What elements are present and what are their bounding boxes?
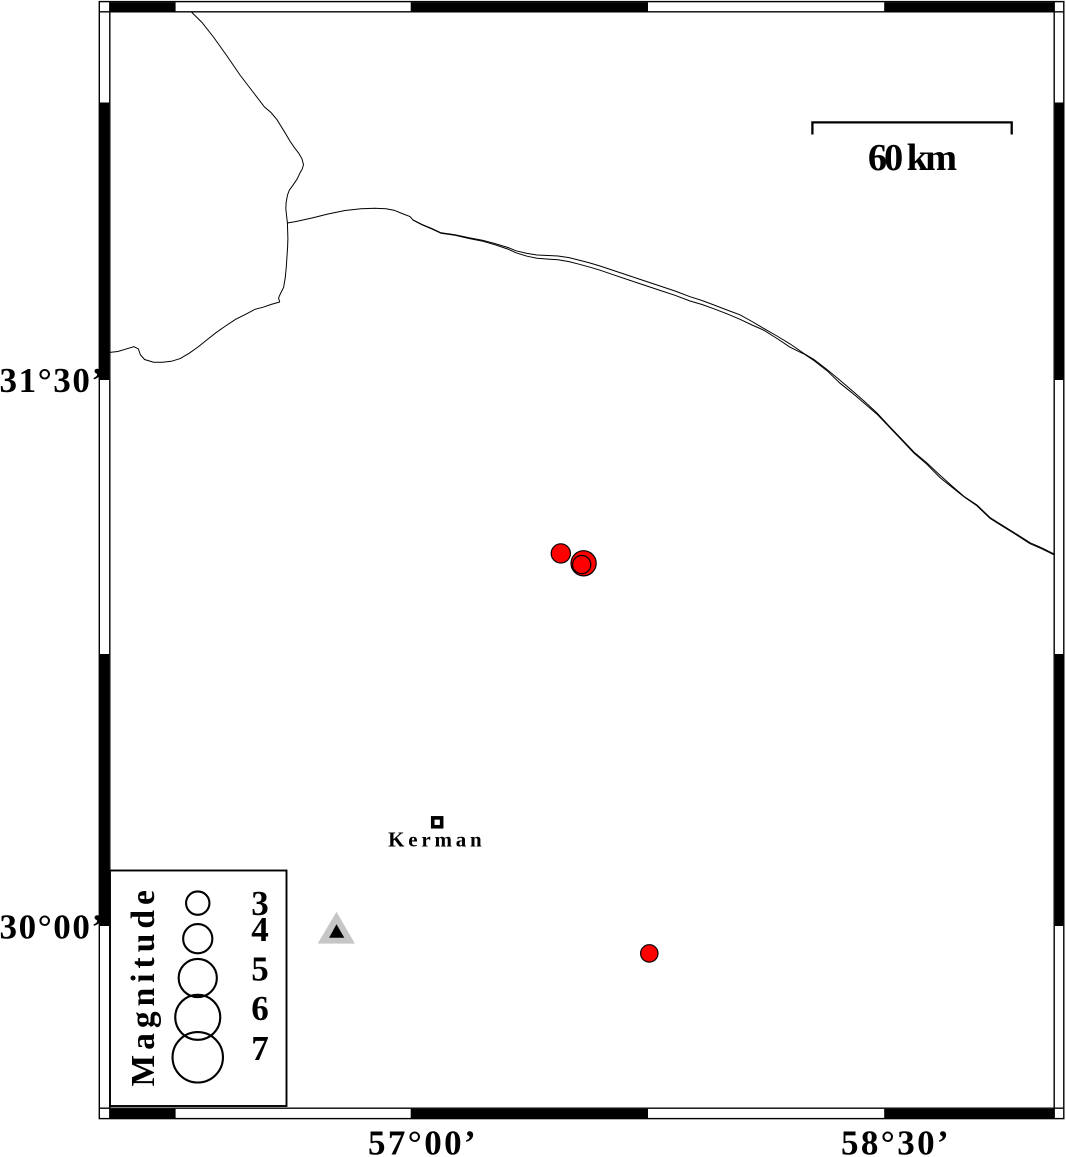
svg-text:6: 6 <box>251 989 269 1028</box>
svg-text:30°00’: 30°00’ <box>0 908 105 947</box>
svg-text:58°30’: 58°30’ <box>841 1124 951 1157</box>
svg-text:4: 4 <box>251 910 269 949</box>
svg-text:Kerman: Kerman <box>388 828 485 852</box>
svg-text:7: 7 <box>251 1029 269 1068</box>
svg-text:60 km: 60 km <box>868 137 957 179</box>
svg-text:31°30’: 31°30’ <box>0 361 105 400</box>
svg-text:5: 5 <box>251 949 269 988</box>
svg-text:57°00’: 57°00’ <box>368 1124 478 1157</box>
svg-text:Magnitude: Magnitude <box>125 885 162 1086</box>
